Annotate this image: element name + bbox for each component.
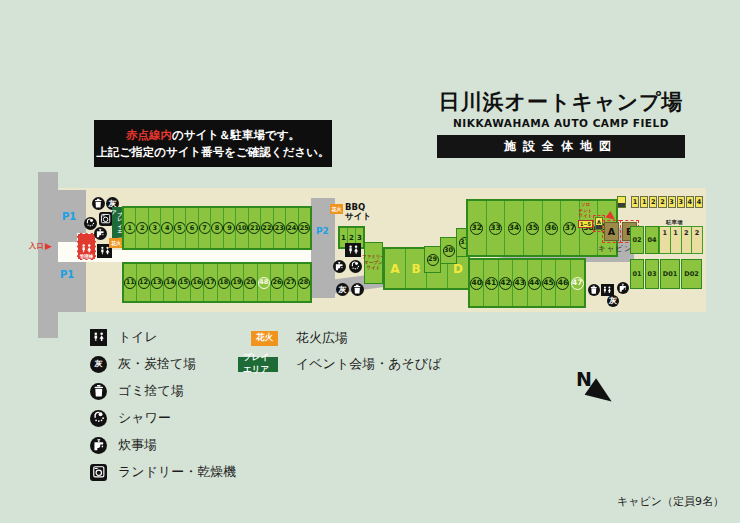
legend-item: ゴミ捨て場 [90, 382, 236, 400]
notice-line2: 上記ご指定のサイト番号をご確認ください。 [97, 145, 330, 160]
solo-range-badge: 1~5 [578, 220, 593, 228]
site-cell: 41 [483, 260, 497, 306]
family-open-site-label: ファミリー オープン サイト [364, 242, 383, 284]
solo-tent-site-label: ソロ テント サイト 1~5 [577, 202, 594, 228]
shower-icon [84, 217, 97, 230]
site-cell: 47 [570, 260, 584, 306]
admin-building: 管理棟 [77, 233, 96, 260]
small-parking-slots: 1122 [659, 226, 703, 254]
site-cell: 33 [486, 201, 505, 255]
fireworks-badge: 花火 [330, 204, 343, 214]
site-cell: 48 [257, 264, 270, 301]
solo-parking-slots: 11223344 [631, 196, 703, 208]
shower-icon [90, 410, 107, 427]
ash-icon: 灰 [336, 283, 349, 296]
site-cell: 43 [512, 260, 526, 306]
campground-map-page: 日川浜オートキャンプ場 NIKKAWAHAMA AUTO CAMP FIELD … [0, 0, 740, 523]
legend-item: 灰灰・炭捨て場 [90, 355, 236, 373]
footer-note: キャビン（定員9名） [617, 494, 724, 509]
legend-label: シャワー [118, 409, 171, 427]
area-badge: 花火 [251, 331, 278, 346]
legend-label: ゴミ捨て場 [118, 382, 184, 400]
cabin-a: A [604, 222, 619, 241]
road-left [38, 172, 58, 338]
site-cell: 8 [210, 208, 222, 248]
area-legend: 花火花火広場プレイエリアイベント会場・あそびば [238, 329, 441, 373]
site-cell: 28 [297, 264, 310, 301]
site-cell: 5 [173, 208, 185, 248]
toilet-icon [345, 243, 361, 257]
area-label: イベント会場・あそびば [296, 355, 441, 373]
parking-label-p1-upper: P1 [62, 211, 76, 222]
site-cell: 11 [124, 264, 136, 301]
site-cell: 2 [649, 196, 657, 208]
legend-label: 灰・炭捨て場 [118, 355, 196, 373]
site-cell: 25 [298, 208, 310, 248]
notice-line1: 赤点線内のサイト＆駐車場です。 [126, 128, 300, 143]
site-cell: 24 [285, 208, 297, 248]
area-label: 花火広場 [296, 329, 348, 347]
site-cell: 10 [235, 208, 247, 248]
site-30: 30 [440, 237, 457, 264]
site-cell: 17 [203, 264, 216, 301]
admin-label: 管理棟 [80, 254, 94, 259]
site-cell: 45 [541, 260, 555, 306]
shower-icon [349, 260, 362, 273]
site-cell: 19 [230, 264, 243, 301]
site-cell: 27 [283, 264, 296, 301]
facility-legend: トイレ灰灰・炭捨て場ゴミ捨て場シャワー炊事場ランドリー・乾燥機 [90, 328, 236, 481]
site-row-11-20-48-26-28: 1112131415161718192048262728 [122, 262, 312, 303]
site-cell: 3 [677, 196, 685, 208]
site-cell: 13 [150, 264, 163, 301]
site-cell: 37 [560, 201, 579, 255]
site-cell: 18 [217, 264, 230, 301]
parking-label-p1-lower: P1 [60, 269, 74, 280]
site-cell: 40 [470, 260, 483, 306]
faucet-icon [333, 260, 346, 273]
site-cell: 14 [163, 264, 176, 301]
entrance-arrow-icon: ▶ [45, 242, 52, 251]
plot-04: 04 [645, 226, 659, 254]
site-cell: 1 [640, 196, 648, 208]
site-cell: 9 [223, 208, 235, 248]
trash-icon [351, 283, 364, 296]
notice-box: 赤点線内のサイト＆駐車場です。 上記ご指定のサイト番号をご確認ください。 [94, 120, 332, 167]
notice-highlight: 赤点線内 [126, 128, 172, 142]
mini-facility-marker [617, 196, 626, 208]
site-cell: 3 [148, 208, 160, 248]
site-cell: 1 [124, 208, 135, 248]
map-banner: 施設全体地図 [437, 135, 685, 158]
plot-02: 02 [630, 226, 644, 254]
ash-icon: 灰 [607, 295, 619, 307]
faucet-icon [90, 437, 107, 454]
site-cell: A [385, 249, 405, 288]
plot-03: 03 [645, 259, 659, 289]
site-cell: 36 [542, 201, 561, 255]
page-title: 日川浜オートキャンプ場 [400, 88, 722, 116]
small-parking-label: 駐車場 [666, 219, 683, 226]
site-row-1-10-21-25: 123456789102122232425 [122, 206, 312, 250]
plot-01: 01 [630, 259, 644, 289]
legend-label: トイレ [118, 328, 158, 346]
site-cell: 4 [686, 196, 694, 208]
legend-item: トイレ [90, 328, 236, 346]
site-cell: 1 [670, 227, 681, 253]
site-29: 29 [424, 246, 441, 273]
entrance-marker: 入口 ▶ [29, 241, 52, 251]
mini-facility-marker: A [595, 217, 603, 230]
site-cell: 7 [198, 208, 210, 248]
page-subtitle: NIKKAWAHAMA AUTO CAMP FIELD [400, 117, 722, 129]
entrance-label: 入口 [29, 241, 44, 251]
site-cell: 1 [660, 227, 670, 253]
trash-icon [90, 383, 107, 400]
site-cell: 16 [190, 264, 203, 301]
site-cell: 4 [695, 196, 703, 208]
parking-label-p2: P2 [316, 226, 329, 236]
site-cell: 42 [498, 260, 512, 306]
ash-icon: 灰 [90, 356, 107, 373]
trash-icon [92, 197, 105, 210]
play-area-strip: プレイエリア [112, 207, 122, 241]
site-cell: 22 [260, 208, 272, 248]
area-badge: プレイエリア [238, 357, 278, 372]
toilet-icon [90, 329, 107, 346]
site-cell: 21 [248, 208, 260, 248]
site-cell: 3 [668, 196, 676, 208]
site-cell: 46 [555, 260, 569, 306]
site-cell: 32 [468, 201, 486, 255]
legend-item: シャワー [90, 409, 236, 427]
site-cell: 15 [176, 264, 189, 301]
site-cell: 44 [527, 260, 541, 306]
site-cell: 23 [273, 208, 285, 248]
site-cell: 4 [160, 208, 172, 248]
faucet-icon [617, 282, 629, 294]
site-cell: 34 [504, 201, 523, 255]
trash-icon [588, 284, 600, 296]
site-cell: 20 [243, 264, 256, 301]
site-row-40-47: 4041424344454647 [468, 258, 586, 308]
toilet-icon [80, 244, 93, 253]
bbq-site-label: BBQ サイト [345, 203, 371, 222]
cabin-caption: キャビン [598, 244, 633, 254]
site-cell: 35 [523, 201, 542, 255]
site-cell: 6 [185, 208, 197, 248]
site-cell: B [405, 249, 426, 288]
site-cell: 2 [658, 196, 666, 208]
legend-item: 炊事場 [90, 436, 236, 454]
legend-label: 炊事場 [118, 436, 157, 454]
site-cell: 2 [681, 227, 692, 253]
area-legend-item: 花火花火広場 [238, 329, 441, 347]
site-cell: 26 [270, 264, 283, 301]
legend-label: ランドリー・乾燥機 [118, 463, 236, 481]
legend-item: ランドリー・乾燥機 [90, 463, 236, 481]
plot-d02: D02 [681, 259, 702, 289]
area-legend-item: プレイエリアイベント会場・あそびば [238, 355, 441, 373]
site-cell: 12 [136, 264, 149, 301]
faucet-icon [94, 227, 107, 240]
plot-d01: D01 [660, 259, 680, 289]
site-cell: 2 [135, 208, 147, 248]
header: 日川浜オートキャンプ場 NIKKAWAHAMA AUTO CAMP FIELD … [400, 88, 722, 158]
site-cell: 2 [691, 227, 702, 253]
laundry-icon [90, 464, 107, 481]
site-cell: 1 [631, 196, 639, 208]
fireworks-badge: 花火 [109, 238, 123, 248]
